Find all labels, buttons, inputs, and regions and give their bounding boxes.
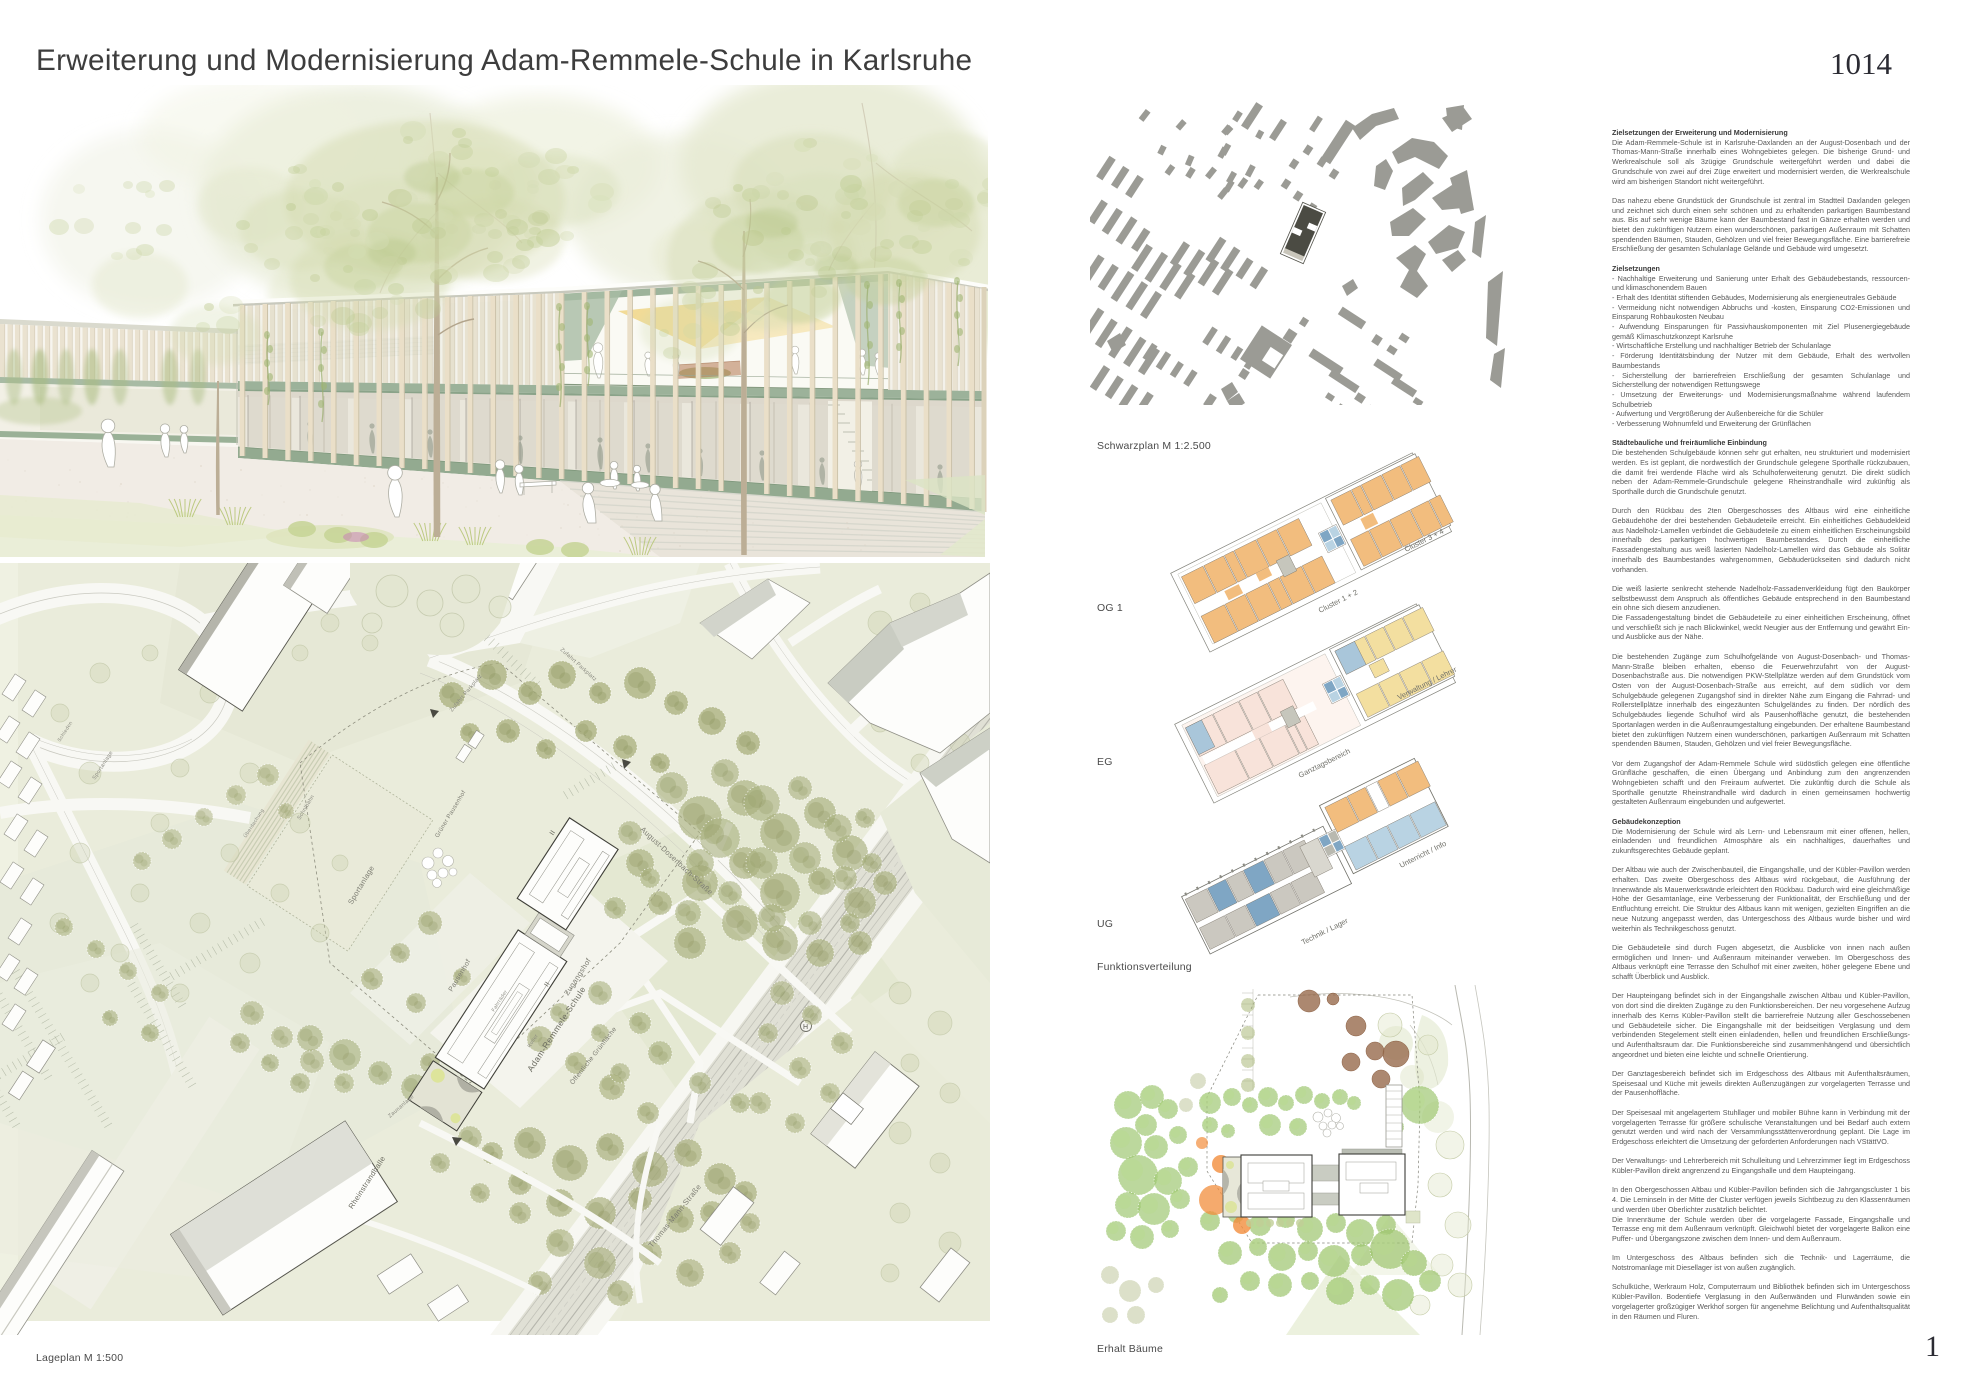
svg-text:H: H <box>803 1024 808 1031</box>
svg-text:Technik / Lager: Technik / Lager <box>1300 916 1350 947</box>
